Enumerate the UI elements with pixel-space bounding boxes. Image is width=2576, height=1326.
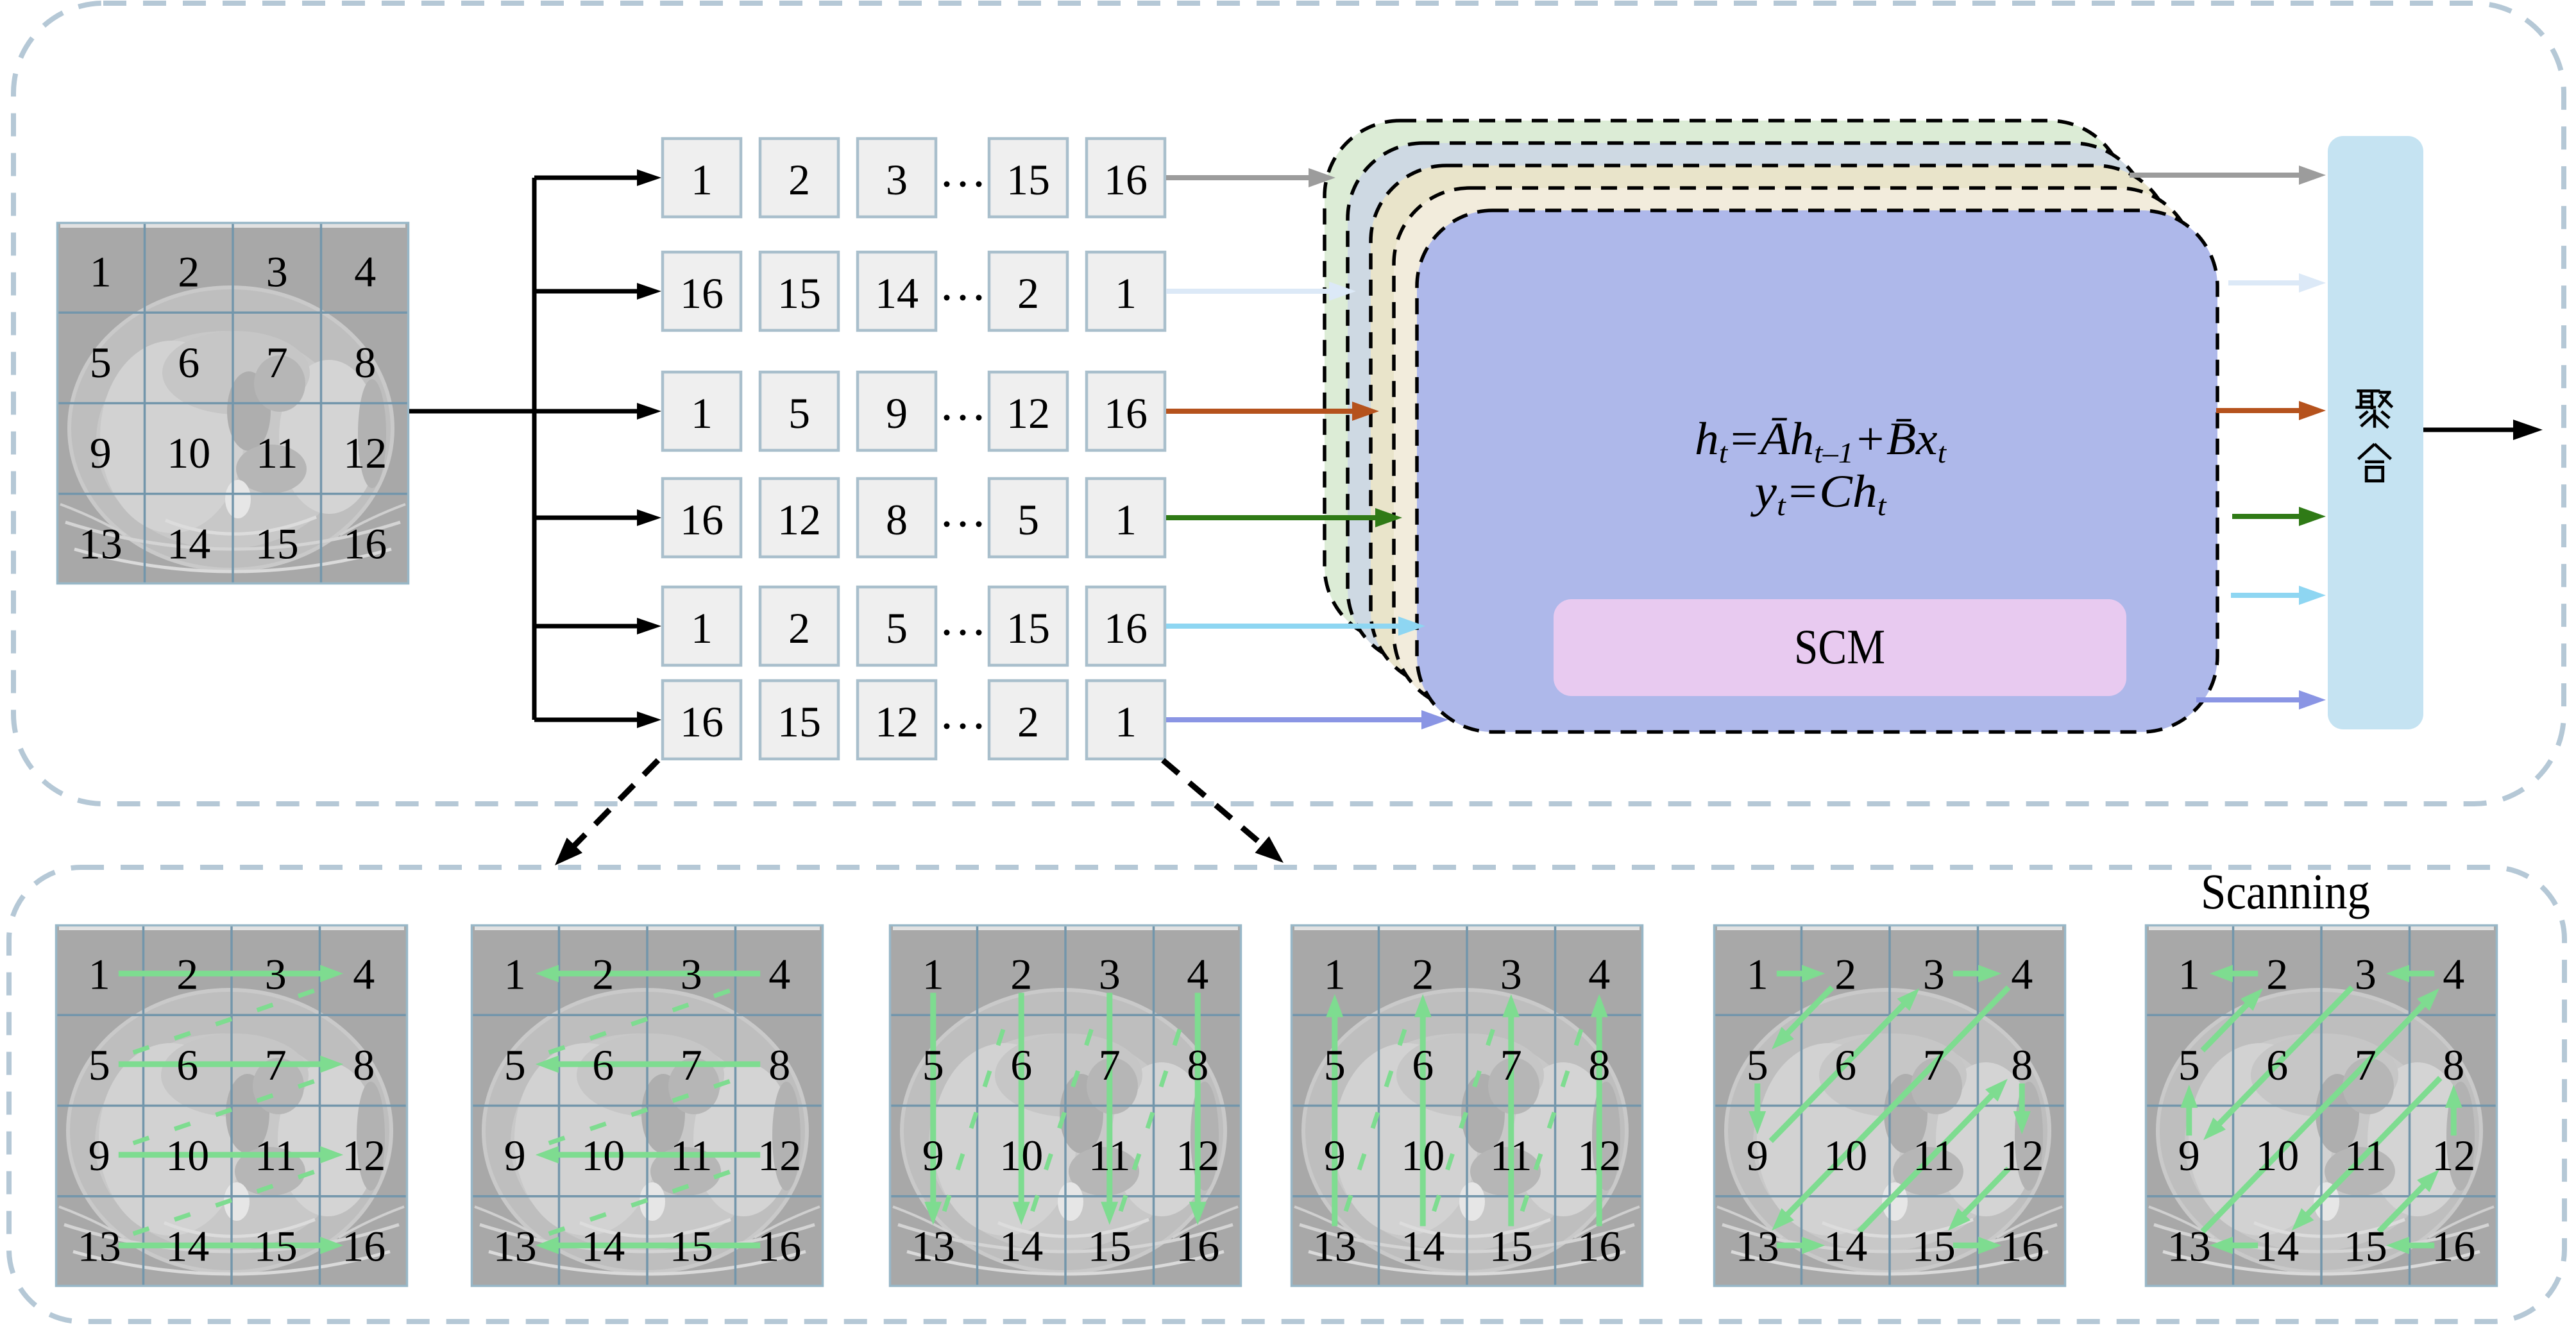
svg-text:1: 1 — [1747, 950, 1768, 999]
svg-text:8: 8 — [1588, 1041, 1610, 1089]
svg-text:12: 12 — [758, 1131, 801, 1180]
svg-text:8: 8 — [2011, 1041, 2033, 1089]
svg-text:10: 10 — [1824, 1131, 1867, 1180]
svg-text:12: 12 — [875, 697, 919, 746]
svg-text:3: 3 — [1923, 950, 1945, 999]
svg-text:8: 8 — [1187, 1041, 1208, 1089]
svg-text:11: 11 — [256, 429, 298, 477]
svg-text:14: 14 — [875, 269, 919, 318]
svg-text:16: 16 — [1577, 1221, 1621, 1270]
svg-text:9: 9 — [89, 1131, 110, 1180]
svg-text:11: 11 — [1490, 1131, 1532, 1180]
svg-text:3: 3 — [1500, 950, 1522, 999]
svg-text:6: 6 — [2266, 1041, 2288, 1089]
svg-text:14: 14 — [165, 1221, 209, 1270]
svg-text:1: 1 — [90, 248, 112, 296]
svg-text:16: 16 — [1176, 1221, 1219, 1270]
svg-text:7: 7 — [2355, 1041, 2377, 1089]
svg-text:15: 15 — [254, 1221, 298, 1270]
svg-text:12: 12 — [343, 429, 387, 477]
svg-text:1: 1 — [89, 950, 110, 999]
svg-text:4: 4 — [353, 950, 375, 999]
svg-text:7: 7 — [265, 1041, 287, 1089]
svg-text:15: 15 — [1006, 604, 1050, 652]
svg-text:4: 4 — [2443, 950, 2464, 999]
svg-text:2: 2 — [2266, 950, 2288, 999]
svg-text:12: 12 — [1006, 389, 1050, 438]
svg-text:5: 5 — [89, 1041, 110, 1089]
svg-text:6: 6 — [1835, 1041, 1856, 1089]
svg-text:5: 5 — [788, 389, 810, 438]
svg-text:2: 2 — [1412, 950, 1434, 999]
svg-text:1: 1 — [1115, 697, 1137, 746]
svg-text:2: 2 — [788, 155, 810, 204]
svg-text:14: 14 — [999, 1221, 1043, 1270]
svg-text:9: 9 — [90, 429, 112, 477]
svg-text:10: 10 — [165, 1131, 209, 1180]
svg-text:13: 13 — [1736, 1221, 1779, 1270]
svg-text:16: 16 — [1104, 604, 1148, 652]
svg-text:15: 15 — [1088, 1221, 1131, 1270]
svg-text:5: 5 — [1324, 1041, 1346, 1089]
svg-text:10: 10 — [999, 1131, 1043, 1180]
svg-text:15: 15 — [777, 697, 821, 746]
svg-text:5: 5 — [1017, 495, 1039, 544]
svg-text:10: 10 — [2255, 1131, 2299, 1180]
svg-text:1: 1 — [1115, 495, 1137, 544]
svg-text:7: 7 — [681, 1041, 702, 1089]
svg-text:3: 3 — [1099, 950, 1121, 999]
svg-text:15: 15 — [1912, 1221, 1956, 1270]
svg-text:2: 2 — [1010, 950, 1032, 999]
svg-text:2: 2 — [1017, 697, 1039, 746]
svg-text:4: 4 — [1187, 950, 1208, 999]
svg-text:16: 16 — [680, 495, 724, 544]
svg-text:1: 1 — [922, 950, 944, 999]
svg-text:SCM: SCM — [1794, 619, 1885, 674]
svg-text:16: 16 — [680, 697, 724, 746]
svg-text:2: 2 — [1835, 950, 1856, 999]
svg-text:5: 5 — [922, 1041, 944, 1089]
svg-text:12: 12 — [342, 1131, 386, 1180]
svg-text:10: 10 — [581, 1131, 625, 1180]
svg-text:15: 15 — [777, 269, 821, 318]
svg-text:5: 5 — [1747, 1041, 1768, 1089]
svg-text:5: 5 — [90, 338, 112, 387]
svg-text:3: 3 — [886, 155, 908, 204]
svg-text:15: 15 — [255, 519, 299, 568]
svg-text:3: 3 — [265, 950, 287, 999]
svg-text:3: 3 — [266, 248, 288, 296]
svg-text:16: 16 — [758, 1221, 801, 1270]
svg-text:4: 4 — [354, 248, 376, 296]
svg-text:1: 1 — [691, 389, 713, 438]
svg-text:yt=Cht: yt=Cht — [1750, 466, 1887, 522]
svg-text:13: 13 — [79, 519, 123, 568]
svg-text:7: 7 — [1923, 1041, 1945, 1089]
svg-text:14: 14 — [1401, 1221, 1445, 1270]
svg-text:5: 5 — [886, 604, 908, 652]
svg-text:8: 8 — [2443, 1041, 2464, 1089]
svg-text:13: 13 — [493, 1221, 537, 1270]
svg-text:6: 6 — [592, 1041, 614, 1089]
svg-text:9: 9 — [1747, 1131, 1768, 1180]
svg-text:8: 8 — [354, 338, 376, 387]
svg-text:5: 5 — [504, 1041, 526, 1089]
svg-text:13: 13 — [2167, 1221, 2211, 1270]
svg-text:9: 9 — [1324, 1131, 1346, 1180]
svg-text:7: 7 — [1099, 1041, 1121, 1089]
svg-text:14: 14 — [1824, 1221, 1867, 1270]
svg-text:16: 16 — [1104, 389, 1148, 438]
svg-text:10: 10 — [1401, 1131, 1445, 1180]
svg-text:16: 16 — [2000, 1221, 2044, 1270]
svg-text:1: 1 — [2178, 950, 2200, 999]
svg-text:1: 1 — [1324, 950, 1346, 999]
svg-text:6: 6 — [1412, 1041, 1434, 1089]
svg-text:5: 5 — [2178, 1041, 2200, 1089]
svg-text:13: 13 — [911, 1221, 955, 1270]
svg-text:12: 12 — [1176, 1131, 1219, 1180]
svg-text:8: 8 — [768, 1041, 790, 1089]
svg-text:15: 15 — [2344, 1221, 2387, 1270]
svg-text:6: 6 — [178, 338, 199, 387]
svg-text:4: 4 — [1588, 950, 1610, 999]
svg-text:4: 4 — [2011, 950, 2033, 999]
svg-text:7: 7 — [266, 338, 288, 387]
svg-text:9: 9 — [886, 389, 908, 438]
svg-text:7: 7 — [1500, 1041, 1522, 1089]
svg-text:12: 12 — [2000, 1131, 2044, 1180]
svg-text:16: 16 — [1104, 155, 1148, 204]
svg-text:11: 11 — [1089, 1131, 1130, 1180]
svg-text:9: 9 — [504, 1131, 526, 1180]
svg-text:1: 1 — [1115, 269, 1137, 318]
svg-text:12: 12 — [777, 495, 821, 544]
svg-text:11: 11 — [1913, 1131, 1954, 1180]
svg-text:1: 1 — [691, 155, 713, 204]
svg-text:16: 16 — [2432, 1221, 2475, 1270]
svg-text:14: 14 — [167, 519, 210, 568]
svg-text:12: 12 — [2432, 1131, 2475, 1180]
svg-text:1: 1 — [504, 950, 526, 999]
svg-text:16: 16 — [343, 519, 387, 568]
svg-text:6: 6 — [176, 1041, 198, 1089]
svg-text:15: 15 — [670, 1221, 713, 1270]
svg-text:4: 4 — [768, 950, 790, 999]
svg-text:13: 13 — [78, 1221, 121, 1270]
svg-text:15: 15 — [1006, 155, 1050, 204]
svg-text:11: 11 — [2344, 1131, 2386, 1180]
svg-text:8: 8 — [353, 1041, 375, 1089]
svg-text:9: 9 — [922, 1131, 944, 1180]
svg-text:13: 13 — [1313, 1221, 1357, 1270]
svg-text:16: 16 — [342, 1221, 386, 1270]
svg-text:12: 12 — [1577, 1131, 1621, 1180]
svg-text:14: 14 — [2255, 1221, 2299, 1270]
svg-text:8: 8 — [886, 495, 908, 544]
svg-text:16: 16 — [680, 269, 724, 318]
svg-text:3: 3 — [681, 950, 702, 999]
svg-text:2: 2 — [1017, 269, 1039, 318]
svg-text:1: 1 — [691, 604, 713, 652]
svg-text:15: 15 — [1489, 1221, 1533, 1270]
svg-text:2: 2 — [176, 950, 198, 999]
svg-text:6: 6 — [1010, 1041, 1032, 1089]
svg-text:2: 2 — [592, 950, 614, 999]
svg-text:Scanning: Scanning — [2201, 863, 2370, 919]
svg-text:14: 14 — [581, 1221, 625, 1270]
svg-text:11: 11 — [255, 1131, 296, 1180]
svg-text:2: 2 — [788, 604, 810, 652]
svg-text:11: 11 — [670, 1131, 712, 1180]
svg-text:10: 10 — [167, 429, 210, 477]
svg-text:3: 3 — [2355, 950, 2377, 999]
svg-text:9: 9 — [2178, 1131, 2200, 1180]
svg-text:2: 2 — [178, 248, 199, 296]
